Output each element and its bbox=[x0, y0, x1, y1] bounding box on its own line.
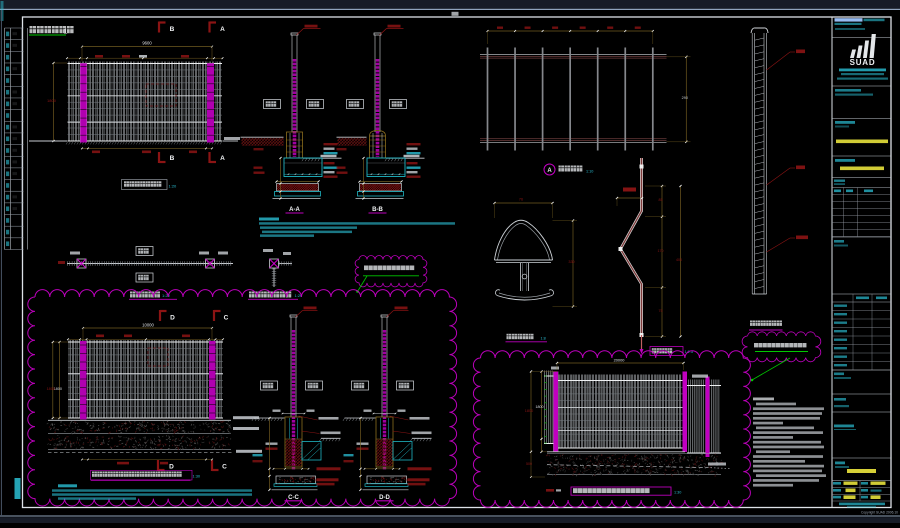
svg-text:A-A: A-A bbox=[289, 207, 300, 213]
svg-text:1800: 1800 bbox=[536, 405, 544, 409]
svg-text:C: C bbox=[222, 464, 227, 471]
svg-text:290: 290 bbox=[682, 96, 688, 100]
svg-text:1800: 1800 bbox=[47, 98, 57, 103]
svg-text:C: C bbox=[224, 315, 229, 322]
svg-text:1:30: 1:30 bbox=[674, 491, 681, 495]
svg-text:Copyright SUAD 2006.10: Copyright SUAD 2006.10 bbox=[861, 510, 898, 514]
svg-text:C-C: C-C bbox=[288, 495, 299, 501]
svg-text:9600: 9600 bbox=[142, 41, 152, 46]
svg-text:500: 500 bbox=[526, 462, 532, 466]
svg-text:75: 75 bbox=[659, 309, 663, 313]
svg-text:D: D bbox=[170, 315, 175, 322]
svg-text:76: 76 bbox=[519, 198, 523, 202]
svg-text:1:20: 1:20 bbox=[169, 184, 178, 189]
svg-text:1:30: 1:30 bbox=[193, 473, 201, 478]
svg-text:A: A bbox=[547, 168, 552, 174]
svg-text:B: B bbox=[170, 26, 175, 33]
svg-text:170: 170 bbox=[658, 249, 664, 253]
svg-text:1800: 1800 bbox=[47, 387, 55, 391]
svg-text:1:8: 1:8 bbox=[541, 337, 546, 341]
svg-text:D-D: D-D bbox=[379, 495, 390, 501]
svg-text:B-B: B-B bbox=[372, 207, 383, 213]
svg-text:10000: 10000 bbox=[142, 323, 154, 328]
svg-text:B: B bbox=[170, 155, 175, 162]
svg-text:1:10: 1:10 bbox=[586, 170, 593, 174]
svg-text:SUAD: SUAD bbox=[850, 58, 876, 67]
svg-text:85: 85 bbox=[659, 198, 663, 202]
svg-text:1800: 1800 bbox=[525, 409, 533, 413]
svg-text:400: 400 bbox=[676, 258, 682, 262]
svg-text:D: D bbox=[169, 464, 174, 471]
svg-text:330: 330 bbox=[568, 260, 574, 264]
svg-text:A: A bbox=[220, 155, 225, 162]
svg-text:20000: 20000 bbox=[614, 357, 626, 362]
svg-text:A: A bbox=[220, 26, 225, 33]
